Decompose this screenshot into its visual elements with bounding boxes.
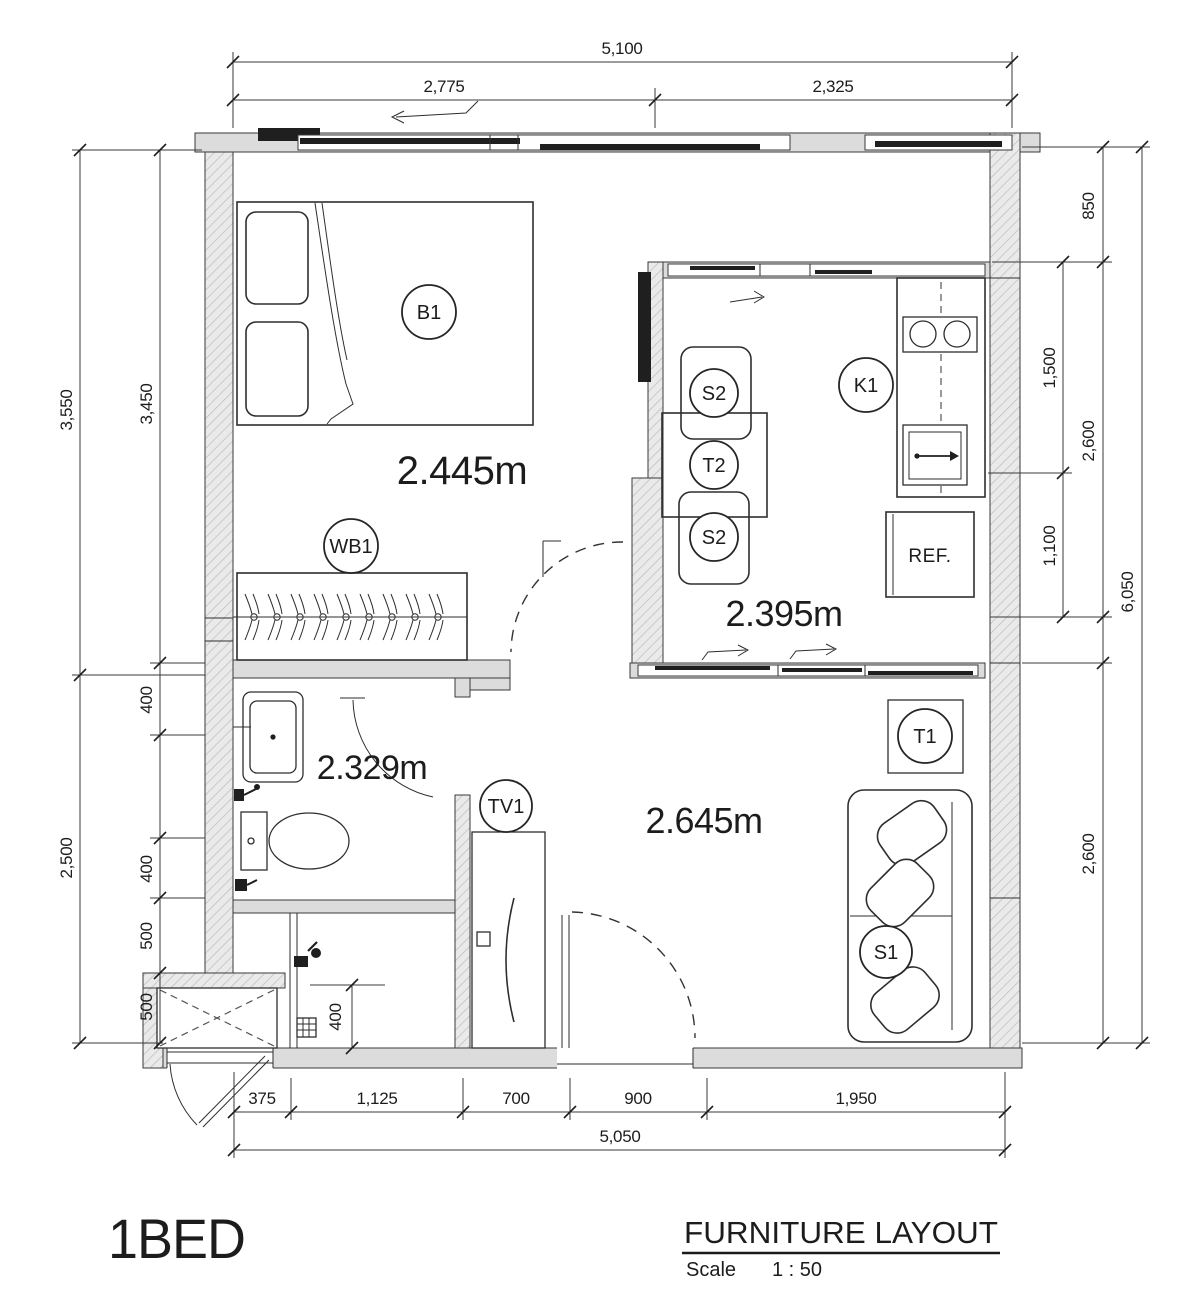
bathroom-bottom-wall: [233, 900, 458, 913]
tag-chair-bottom: S2: [702, 527, 726, 549]
kitchen-left-wall-lower: [632, 478, 663, 663]
dim-bottom-total: 5,050: [599, 1127, 640, 1146]
tag-bed: B1: [417, 302, 441, 324]
tag-chair-top: S2: [702, 383, 726, 405]
cooktop: [903, 425, 967, 485]
tag-side-table: T1: [913, 726, 936, 748]
wardrobe: [233, 573, 467, 660]
kitchen-width-label: 2.395m: [725, 593, 842, 634]
right-wall: [990, 133, 1020, 1048]
dim-left-400a: 400: [137, 686, 156, 713]
dim-bottom-900: 900: [624, 1089, 651, 1108]
scale-value: 1 : 50: [772, 1259, 822, 1281]
bathroom-width-label: 2.329m: [317, 749, 427, 787]
hall-wall-step: [468, 678, 510, 690]
dim-left-400b: 400: [137, 855, 156, 882]
dim-right-1100: 1,100: [1040, 525, 1059, 566]
tag-sofa: S1: [874, 942, 898, 964]
wardrobe-bottom-wall: [233, 660, 510, 678]
dim-right-2600-lower: 2,600: [1079, 833, 1098, 874]
floor-plan: REF.: [0, 0, 1200, 1298]
dim-top-total: 5,100: [601, 39, 642, 58]
dim-bottom-1950: 1,950: [835, 1089, 876, 1108]
water-valve: [234, 784, 260, 801]
hall-tv-wall: [455, 795, 470, 1048]
living-door-opening: [557, 1046, 693, 1070]
entry-alcove-cap-wall: [143, 973, 285, 988]
bathroom-fixtures: [233, 692, 433, 891]
dim-bottom-1125: 1,125: [356, 1089, 397, 1108]
laundry-fixtures: [157, 942, 321, 1127]
bathroom-right-wall-stub: [455, 678, 470, 697]
dim-bottom-375: 375: [248, 1089, 275, 1108]
drawing-title: FURNITURE LAYOUT: [684, 1215, 998, 1250]
dim-right-850: 850: [1079, 192, 1098, 219]
tv-mount: [477, 932, 490, 946]
dim-laundry-400: 400: [326, 1003, 345, 1030]
dim-bottom-700: 700: [502, 1089, 529, 1108]
dim-left-inner-upper: 3,450: [137, 383, 156, 424]
water-valve: [235, 879, 257, 891]
duct-wall-dark: [638, 272, 651, 382]
tag-kitchen: K1: [854, 375, 878, 397]
tag-tv: TV1: [488, 796, 525, 818]
window-direction-arrow: [396, 101, 478, 117]
dim-top-left: 2,775: [423, 77, 464, 96]
dim-right-1500: 1,500: [1040, 347, 1059, 388]
dim-top-right: 2,325: [812, 77, 853, 96]
dim-right-6050: 6,050: [1118, 571, 1137, 612]
title-block: 1BED FURNITURE LAYOUT Scale 1 : 50: [108, 1207, 1000, 1281]
washer-tap: [294, 942, 321, 967]
fridge-label: REF.: [908, 546, 951, 567]
dim-left-outer-upper: 3,550: [57, 389, 76, 430]
floor-drain: [297, 1018, 316, 1037]
pillow: [246, 322, 308, 416]
sink-drain: [270, 734, 275, 739]
entry-door-swing: [170, 1064, 197, 1125]
dim-left-500a: 500: [137, 922, 156, 949]
shaft-box: [157, 988, 277, 1048]
unit-name: 1BED: [108, 1207, 245, 1270]
scale-label: Scale: [686, 1259, 736, 1281]
left-wall: [205, 152, 233, 975]
toilet-bowl: [269, 813, 349, 869]
dim-left-outer-lower: 2,500: [57, 837, 76, 878]
pillow: [246, 212, 308, 304]
entry-opening: [167, 1046, 273, 1070]
fridge: REF.: [886, 512, 974, 597]
tag-wardrobe: WB1: [329, 536, 372, 558]
living-width-label: 2.645m: [645, 800, 762, 841]
living-door-swing: [572, 912, 695, 1038]
tag-dining-table: T2: [702, 455, 725, 477]
dim-left-500b: 500: [137, 993, 156, 1020]
sofa: [848, 790, 972, 1042]
bedroom-width-label: 2.445m: [397, 449, 527, 493]
bedroom-door-swing: [511, 542, 623, 652]
floor-plan-page: REF.: [0, 0, 1200, 1298]
dim-right-2600-upper: 2,600: [1079, 420, 1098, 461]
